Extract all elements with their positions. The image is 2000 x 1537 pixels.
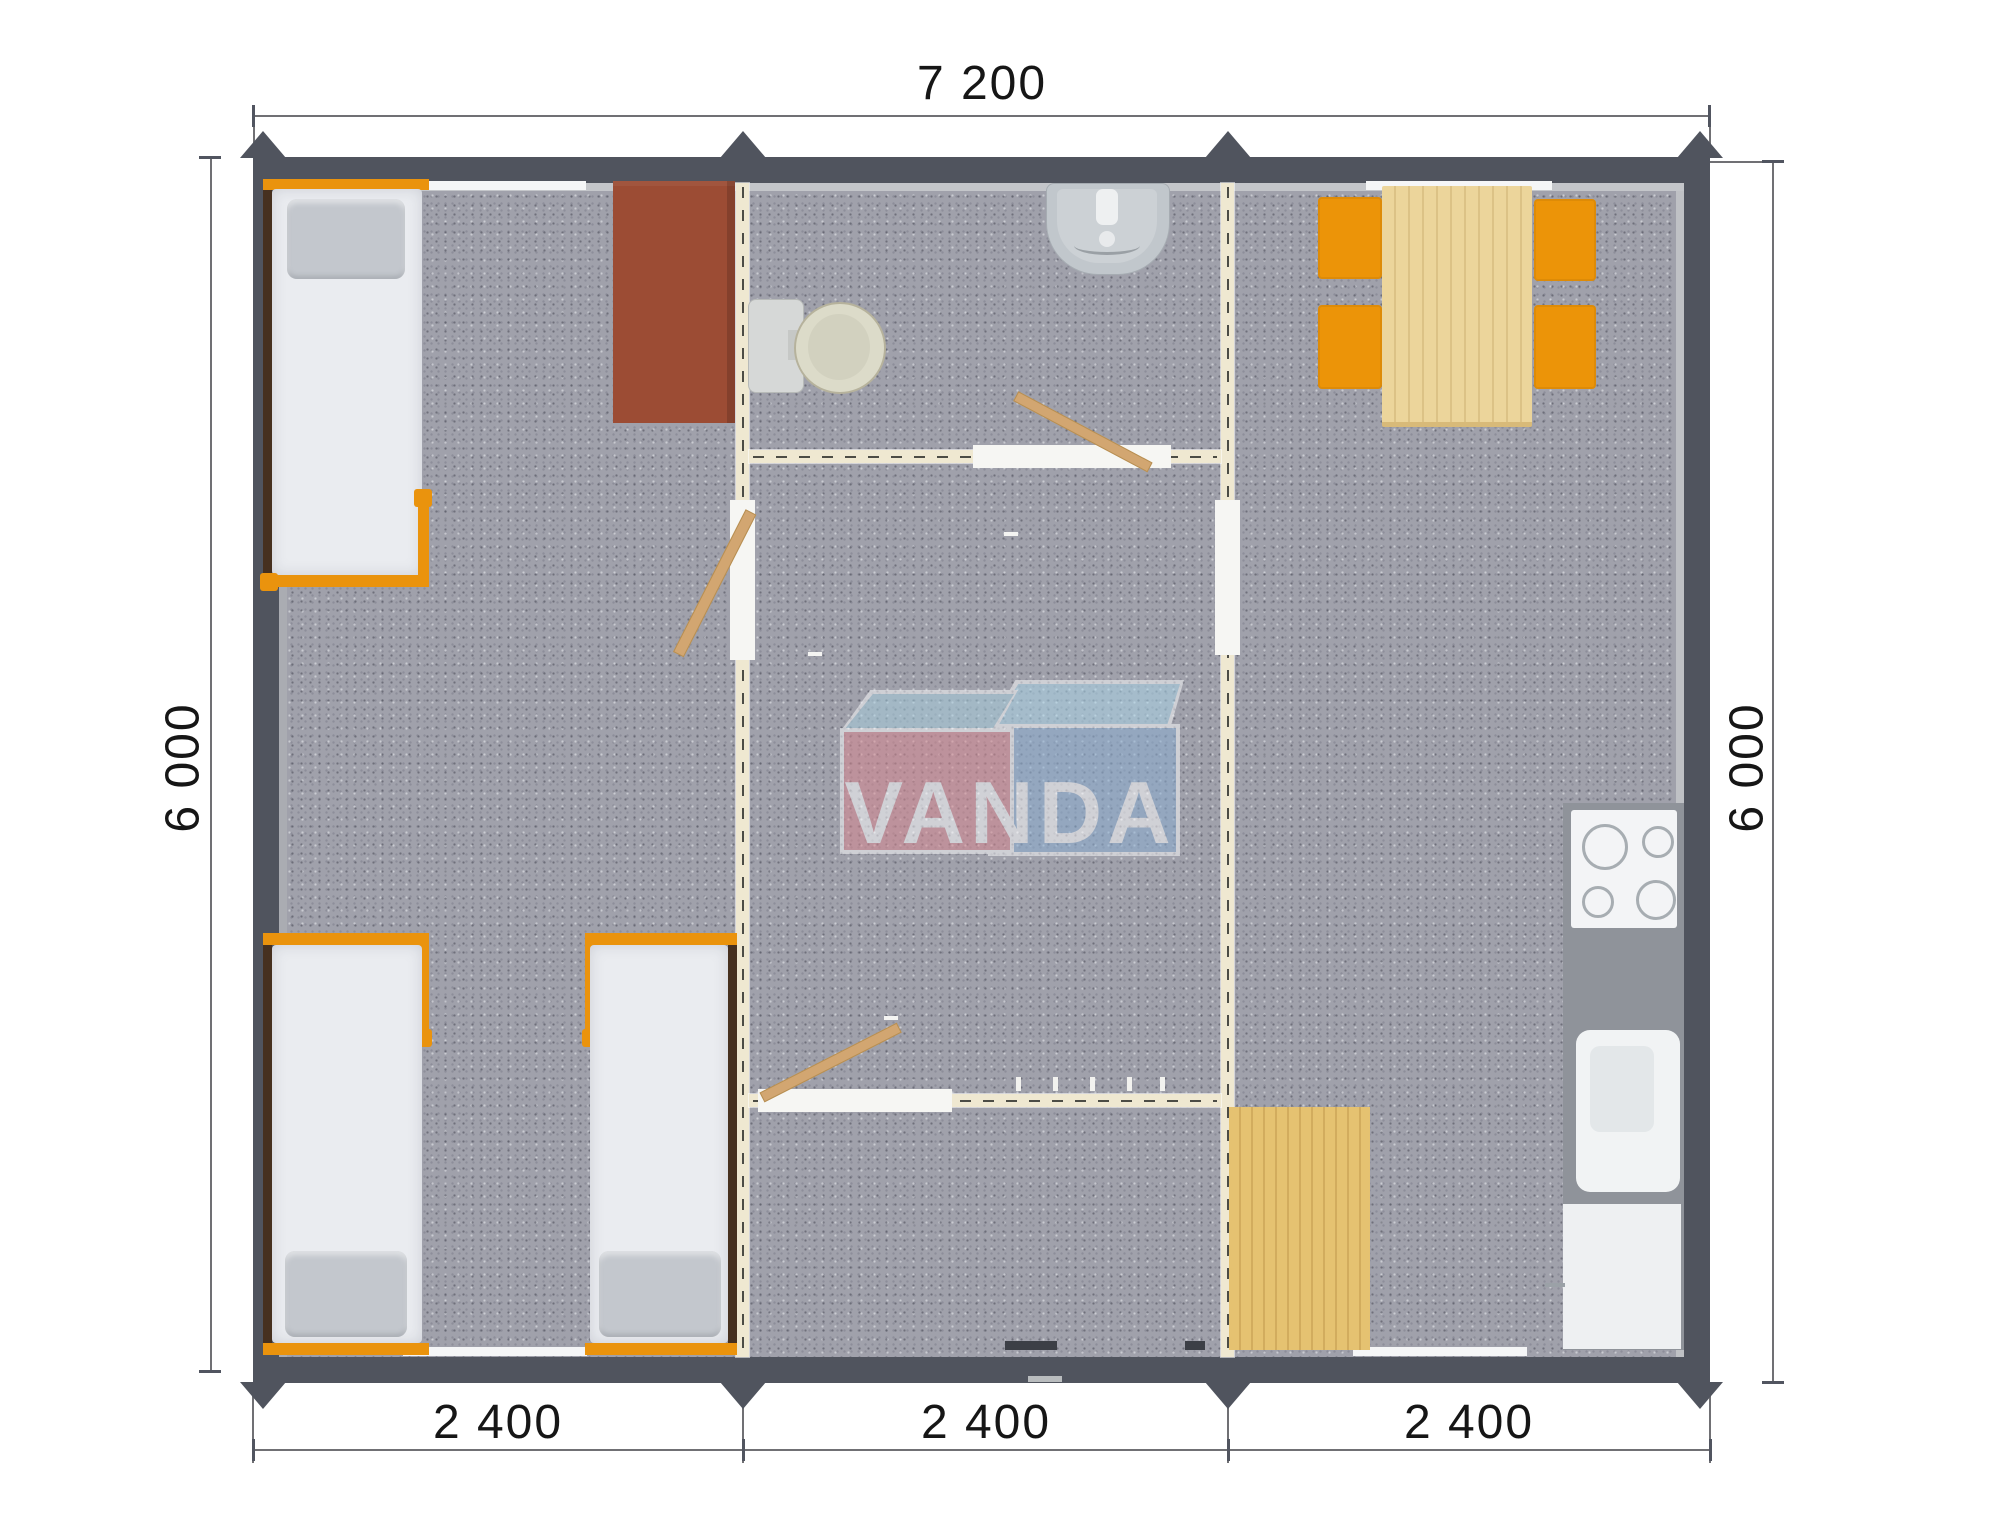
bed-bottom-left (263, 933, 429, 1355)
dimension-label-module-3: 2 400 (1359, 1395, 1579, 1450)
dimension-label-top: 7 200 (872, 56, 1092, 111)
entry-step (1028, 1376, 1062, 1382)
coat-hook (1016, 1077, 1021, 1091)
bed-top-left (263, 179, 429, 587)
dining-chair (1534, 305, 1596, 389)
bed-bottom-middle (585, 933, 737, 1355)
dimension-tick (199, 1370, 221, 1373)
coat-hook (1090, 1077, 1095, 1091)
coat-hook (1160, 1077, 1165, 1091)
dimension-tick (1762, 1381, 1784, 1384)
wall-joint-mark (1205, 131, 1251, 158)
wall-joint-mark (240, 1382, 286, 1409)
dimension-tick (1708, 105, 1711, 127)
dining-chair (1318, 197, 1382, 279)
bed-frame-bar (263, 1343, 429, 1355)
bed-frame-corner (260, 573, 278, 591)
bed-rail (728, 933, 737, 1355)
coat-hook (1053, 1077, 1058, 1091)
kitchen-sink-basin (1590, 1046, 1654, 1132)
burner-icon (1582, 824, 1628, 870)
wood-floor-mat (1229, 1107, 1370, 1350)
dimension-tick (252, 105, 255, 127)
vanda-logo: VANDA (842, 678, 1178, 866)
dimension-tick (1709, 1439, 1712, 1461)
pillow (599, 1251, 721, 1337)
burner-icon (1636, 880, 1676, 920)
dimension-tick (199, 156, 221, 159)
bed-frame-bar (585, 933, 737, 945)
toilet-seat (808, 314, 870, 380)
logo-pink-box-top (844, 694, 1014, 730)
threshold-mark (1005, 1341, 1057, 1350)
dimension-tick (1227, 1439, 1230, 1461)
dimension-tick (1762, 160, 1784, 163)
window-bottom-right (1353, 1347, 1527, 1356)
pillow (287, 199, 405, 279)
door-opening-hall (758, 1089, 952, 1112)
wall-joint-mark (720, 131, 766, 158)
door-opening-living (1215, 500, 1240, 655)
fridge-handle (1545, 1283, 1565, 1287)
door-handle (884, 1016, 898, 1020)
logo-text: VANDA (842, 762, 1178, 864)
dimension-tick (742, 1439, 745, 1461)
bed-frame-bar (263, 575, 429, 587)
basin-overflow-line (1074, 236, 1140, 255)
bed-rail (263, 933, 272, 1355)
door-handle (1004, 532, 1018, 536)
wall-joint-mark (1205, 1382, 1251, 1409)
dimension-line-top (253, 115, 1710, 117)
faucet-icon (1096, 189, 1118, 225)
wardrobe (613, 181, 735, 423)
logo-blue-box-top (992, 684, 1180, 726)
dining-chair (1534, 199, 1596, 281)
wall-joint-mark (1677, 1382, 1723, 1409)
window-bottom-left (403, 1347, 587, 1356)
dimension-label-module-1: 2 400 (388, 1395, 608, 1450)
bed-frame-bar (418, 497, 429, 587)
floor-plan: 7 200 6 000 6 000 2 400 2 400 2 400 (0, 0, 2000, 1537)
wall-joint-mark (240, 131, 286, 158)
dimension-label-left: 6 000 (156, 658, 211, 878)
window-top-left (428, 181, 586, 190)
bed-frame-bar (263, 933, 429, 945)
coat-hook (1127, 1077, 1132, 1091)
bed-frame-bar (585, 1343, 737, 1355)
threshold-mark (1185, 1341, 1205, 1350)
dimension-tick (252, 1439, 255, 1461)
dimension-label-module-2: 2 400 (876, 1395, 1096, 1450)
burner-icon (1642, 826, 1674, 858)
wall-joint-mark (720, 1382, 766, 1409)
door-handle (808, 652, 822, 656)
dining-chair (1318, 305, 1382, 389)
fridge (1563, 1204, 1681, 1349)
bed-frame-corner (414, 489, 432, 507)
burner-icon (1582, 886, 1614, 918)
wall-joint-mark (1677, 131, 1723, 158)
dining-table (1382, 186, 1532, 427)
bed-rail (263, 179, 272, 587)
dimension-label-right: 6 000 (1720, 658, 1775, 878)
pillow (285, 1251, 407, 1337)
